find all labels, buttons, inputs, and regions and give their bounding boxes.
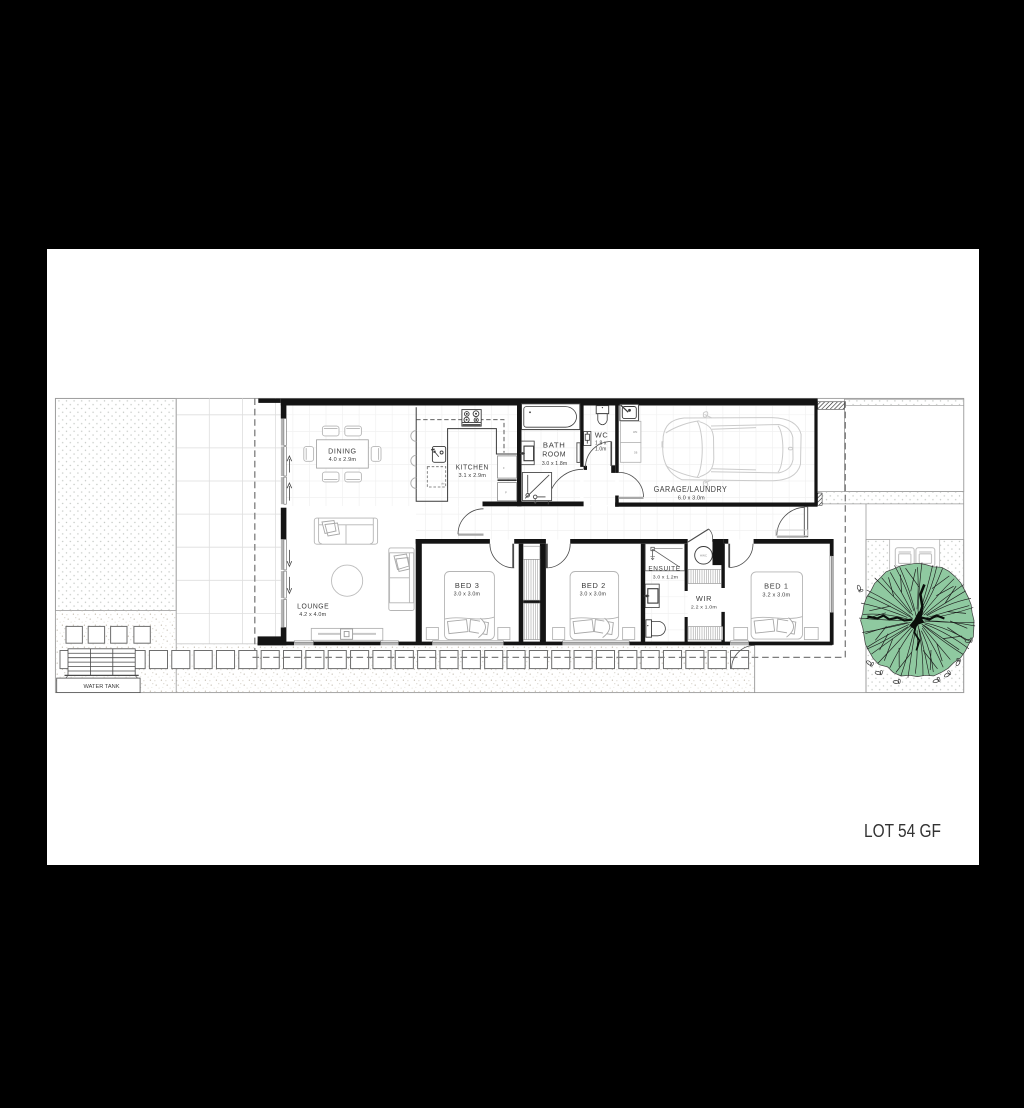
svg-text:3.0 x 1.8m: 3.0 x 1.8m	[542, 461, 568, 467]
svg-text:WIR: WIR	[696, 596, 712, 603]
svg-text:LOUNGE: LOUNGE	[297, 602, 329, 611]
svg-text:3.1 x 2.9m: 3.1 x 2.9m	[459, 473, 487, 479]
svg-text:ENSUITE: ENSUITE	[648, 565, 680, 572]
svg-text:GARAGE/LAUNDRY: GARAGE/LAUNDRY	[654, 484, 728, 494]
svg-text:ROOM: ROOM	[542, 450, 566, 459]
svg-text:F: F	[503, 466, 505, 470]
svg-text:P: P	[505, 491, 507, 495]
svg-text:3.2 x 3.0m: 3.2 x 3.0m	[762, 593, 790, 599]
svg-text:LOT 54 GF: LOT 54 GF	[864, 820, 941, 841]
svg-text:3.0 x 3.0m: 3.0 x 3.0m	[454, 591, 481, 597]
svg-text:4.2 x 4.0m: 4.2 x 4.0m	[299, 612, 326, 618]
svg-text:4.0 x 2.9m: 4.0 x 2.9m	[329, 457, 357, 463]
svg-text:1.0m: 1.0m	[595, 447, 607, 453]
svg-text:HWC: HWC	[700, 554, 708, 558]
svg-text:WM: WM	[633, 431, 637, 434]
svg-text:1.8 x: 1.8 x	[595, 441, 607, 447]
svg-text:WATER TANK: WATER TANK	[84, 684, 120, 690]
svg-text:BED 2: BED 2	[581, 581, 606, 590]
svg-text:WC: WC	[595, 430, 609, 439]
svg-text:BATH: BATH	[543, 440, 566, 449]
svg-text:3.0 x 3.0m: 3.0 x 3.0m	[580, 591, 607, 597]
svg-text:2.2 x 1.0m: 2.2 x 1.0m	[691, 604, 717, 610]
svg-text:KITCHEN: KITCHEN	[456, 463, 489, 472]
svg-text:BED 3: BED 3	[455, 581, 480, 590]
svg-text:DINING: DINING	[328, 447, 357, 456]
svg-text:3.0 x 1.2m: 3.0 x 1.2m	[653, 574, 678, 580]
svg-text:6.0 x 3.0m: 6.0 x 3.0m	[678, 496, 705, 502]
svg-text:BED 1: BED 1	[764, 582, 789, 591]
svg-text:DB: DB	[634, 452, 638, 455]
